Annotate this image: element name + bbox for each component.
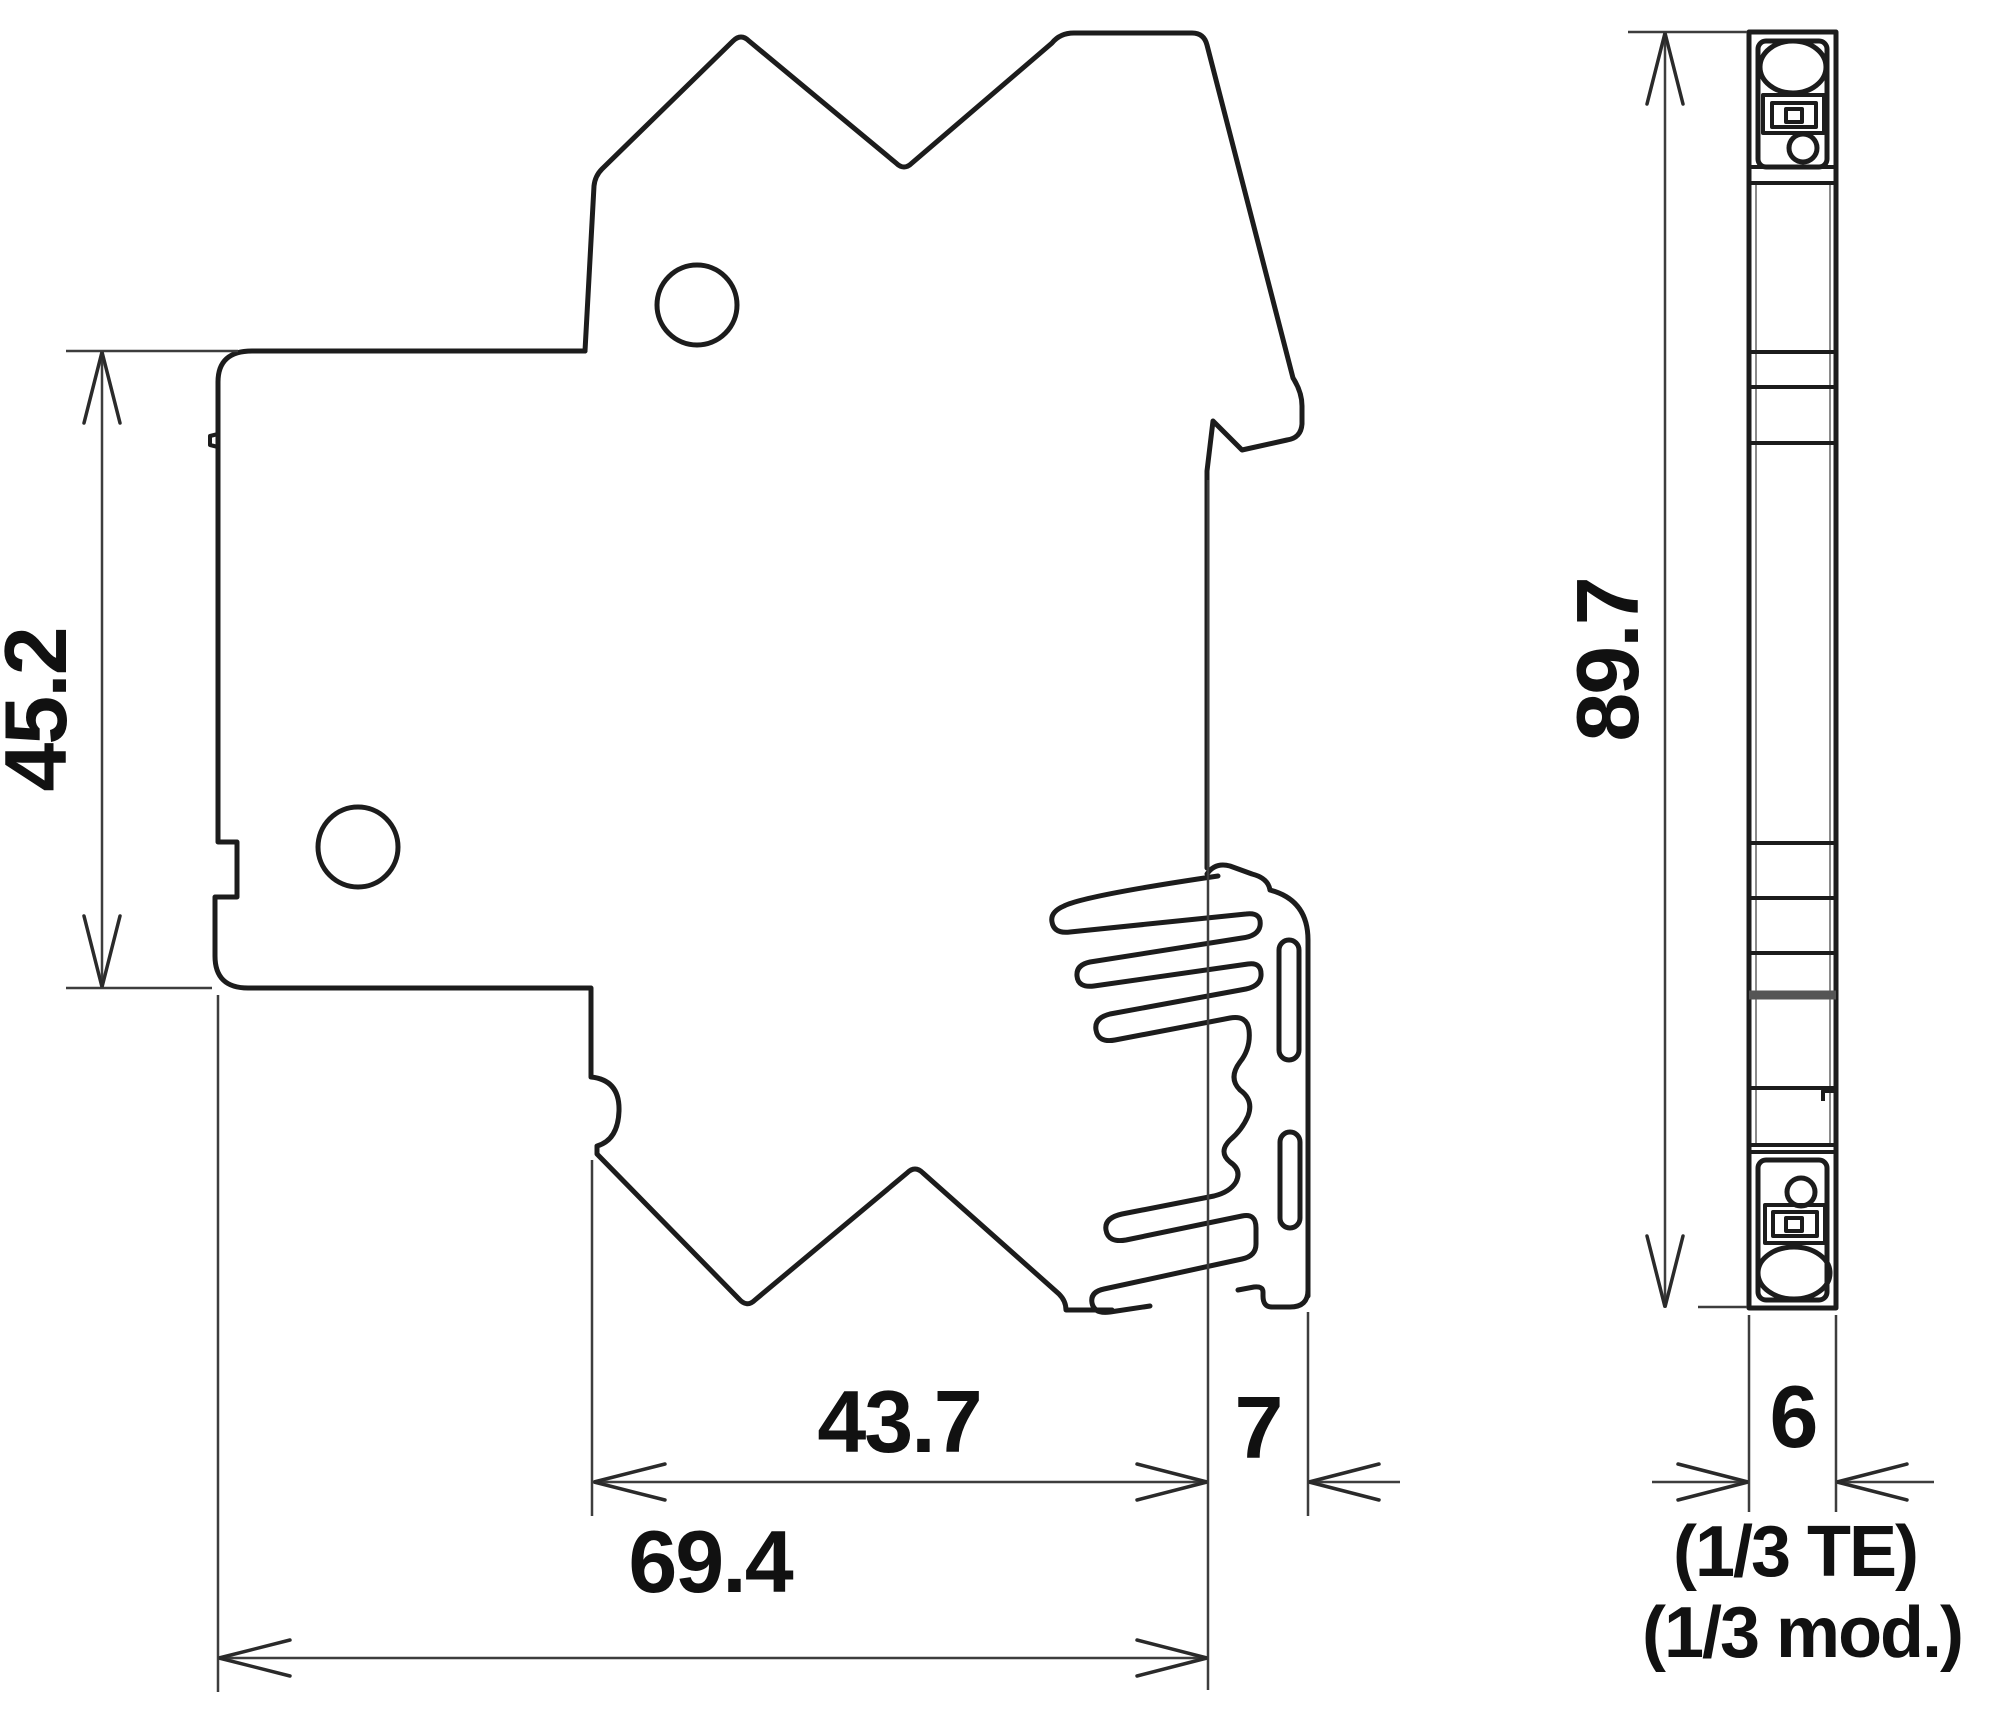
- dim-upper-left-height: 45.2: [0, 351, 238, 988]
- dim-label-89-7: 89.7: [1558, 578, 1657, 741]
- dim-label-45-2: 45.2: [0, 628, 85, 791]
- dim-note-mod: (1/3 mod.): [1642, 1593, 1962, 1673]
- dim-overall-height: 89.7: [1558, 32, 1747, 1308]
- front-top-terminal: [1758, 41, 1827, 167]
- upper-hole: [657, 265, 737, 345]
- bottom-terminal-wire-hole: [1758, 1247, 1830, 1299]
- top-terminal-screw-slot: [1786, 109, 1802, 122]
- dim-label-6: 6: [1770, 1367, 1817, 1466]
- clip-outer-edge: [1270, 890, 1308, 1296]
- side-view: [210, 33, 1308, 1312]
- dim-clip-depth: 7: [1235, 1378, 1400, 1500]
- top-terminal-wire-hole: [1760, 41, 1826, 93]
- lower-hole: [318, 807, 398, 887]
- dimensions: 45.2 89.7 43.7 7: [0, 32, 1962, 1692]
- technical-drawing-page: 45.2 89.7 43.7 7: [0, 0, 2000, 1714]
- bottom-terminal-test-hole: [1787, 1178, 1815, 1206]
- clip-slot-upper: [1279, 940, 1299, 1060]
- clip-spring-path: [1052, 865, 1270, 1312]
- dim-label-69-4: 69.4: [628, 1512, 793, 1611]
- top-terminal-test-hole: [1789, 134, 1817, 162]
- dimension-drawing-canvas: 45.2 89.7 43.7 7: [0, 0, 2000, 1714]
- front-view: [1749, 32, 1836, 1308]
- dim-module-width: 6 (1/3 TE) (1/3 mod.): [1642, 1315, 1962, 1673]
- front-view-outer: [1749, 32, 1836, 1308]
- dim-label-43-7: 43.7: [817, 1372, 980, 1471]
- din-rail-clip: [1052, 865, 1308, 1312]
- front-view-divider-lines: [1749, 167, 1836, 1152]
- side-view-body-outline: [215, 351, 1112, 1310]
- front-bottom-terminal: [1758, 1160, 1830, 1300]
- dim-total-depth: 69.4: [218, 1512, 1208, 1676]
- side-view-top-outline: [585, 33, 1302, 868]
- clip-slot-lower: [1280, 1132, 1300, 1228]
- bottom-terminal-screw-slot: [1786, 1218, 1802, 1231]
- dim-note-te: (1/3 TE): [1673, 1512, 1917, 1592]
- dim-label-7: 7: [1235, 1378, 1282, 1477]
- dim-body-depth: 43.7: [593, 1372, 1208, 1500]
- clip-foot: [1238, 1287, 1308, 1307]
